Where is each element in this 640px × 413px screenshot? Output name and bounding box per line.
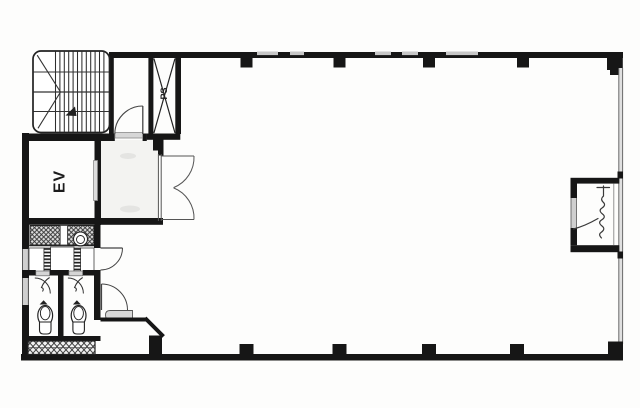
- svg-text:EV: EV: [52, 170, 69, 193]
- svg-text:PS: PS: [159, 87, 169, 99]
